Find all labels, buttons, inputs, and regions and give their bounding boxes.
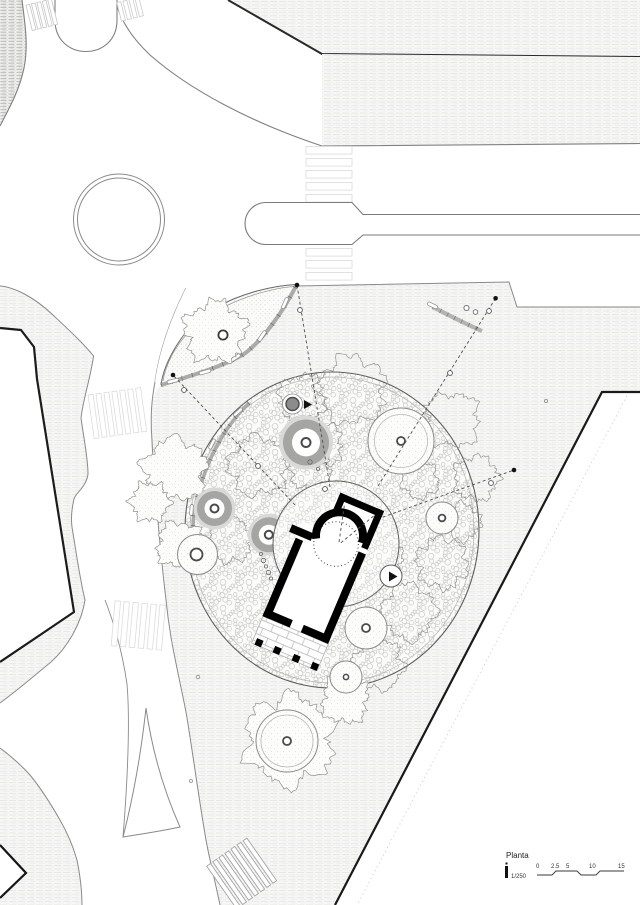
- svg-text:10: 10: [589, 864, 596, 870]
- svg-text:15: 15: [618, 864, 625, 870]
- svg-text:Planta: Planta: [506, 851, 529, 860]
- svg-text:2.5: 2.5: [551, 864, 560, 870]
- svg-text:1/250: 1/250: [511, 874, 527, 880]
